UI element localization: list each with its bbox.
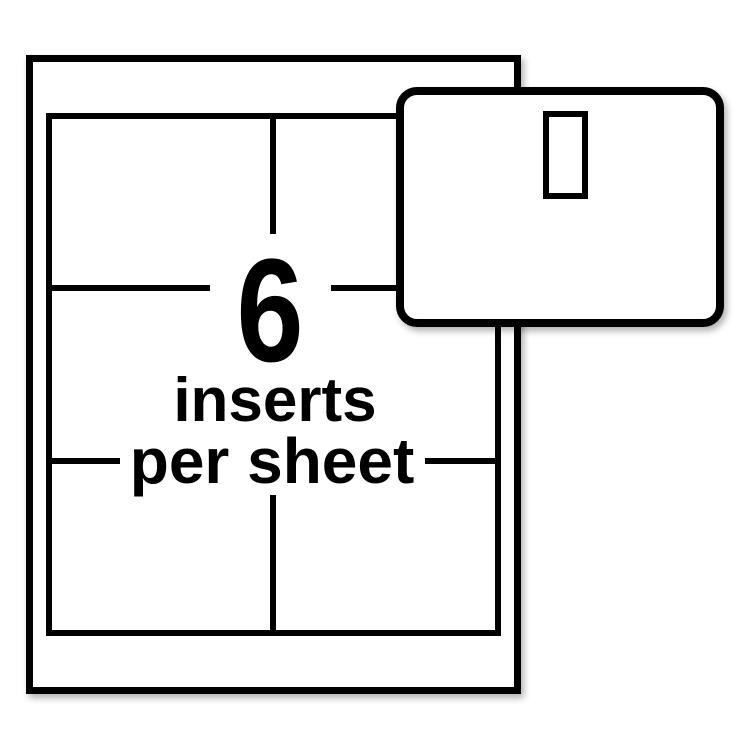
- svg-text:per sheet: per sheet: [130, 425, 415, 497]
